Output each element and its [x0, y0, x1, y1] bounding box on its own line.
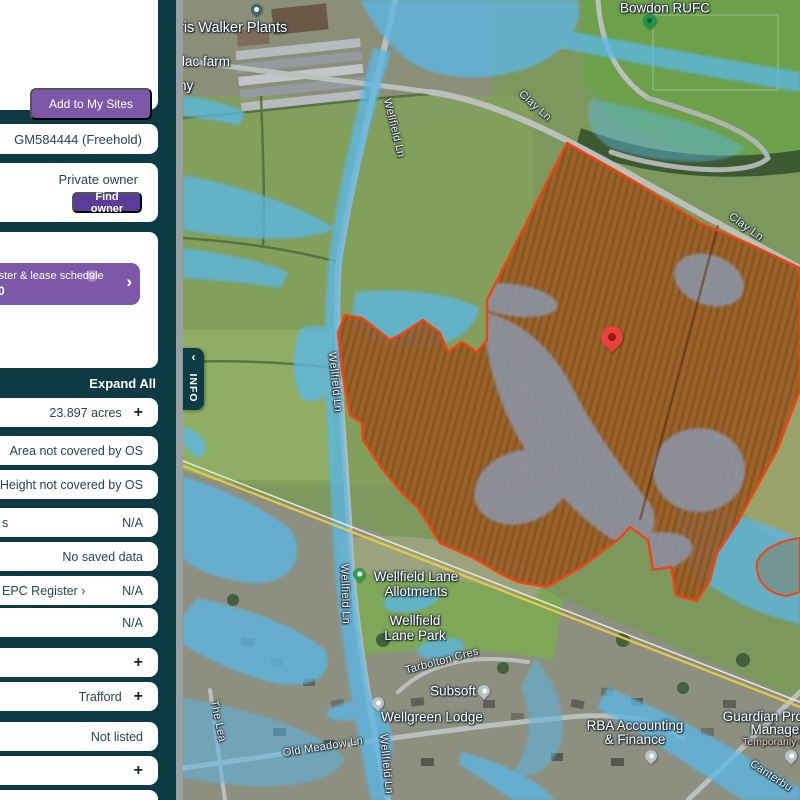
- row-partial[interactable]: [0, 790, 158, 800]
- row-value: Trafford: [79, 690, 122, 704]
- row-listed[interactable]: Not listed: [0, 722, 158, 751]
- row-epc[interactable]: EPC Register › N/A: [0, 576, 158, 605]
- row-acreage[interactable]: 23.897 acres +: [0, 398, 158, 427]
- documents-card: gister & lease schedule ? .00 ›: [0, 232, 158, 368]
- row-na-1[interactable]: s N/A: [0, 508, 158, 537]
- find-owner-button[interactable]: Find owner: [72, 192, 142, 213]
- title-number-card[interactable]: GM584444 (Freehold): [0, 124, 158, 154]
- row-value: N/A: [122, 584, 143, 598]
- chevron-right-icon: ›: [126, 272, 132, 292]
- label-bowdon-rufc[interactable]: Bowdon RUFC: [620, 1, 710, 16]
- row-expandable-2[interactable]: +: [0, 756, 158, 785]
- row-value: Area not covered by OS: [10, 444, 143, 458]
- label-rba[interactable]: RBA Accounting & Finance: [575, 719, 695, 747]
- row-value: 23.897 acres: [49, 406, 121, 420]
- row-value: Height not covered by OS: [0, 478, 143, 492]
- label-guardian-line2: Manageme: [718, 723, 800, 736]
- expand-plus-icon[interactable]: +: [134, 405, 143, 421]
- expand-plus-icon[interactable]: +: [134, 763, 143, 779]
- property-sidebar: Add to My Sites GM584444 (Freehold) Priv…: [0, 0, 176, 800]
- map-info-tab[interactable]: ‹ INFO: [183, 348, 204, 410]
- epc-register-link[interactable]: EPC Register ›: [2, 584, 85, 598]
- row-na-2[interactable]: N/A: [0, 608, 158, 637]
- title-number-text: GM584444 (Freehold): [14, 132, 142, 147]
- property-app: Bowdon RUFC ris Walker Plants ilac farm …: [0, 0, 800, 800]
- banner-price: .00: [0, 284, 5, 298]
- label-guardian-closed: Temporarily clos: [718, 736, 800, 749]
- row-value: N/A: [122, 516, 143, 530]
- sidebar-scrollbar[interactable]: [176, 0, 183, 800]
- row-expandable-1[interactable]: +: [0, 648, 158, 677]
- expand-plus-icon[interactable]: +: [134, 655, 143, 671]
- label-allotments-line2: Allotments: [351, 584, 481, 599]
- label-guardian[interactable]: Guardian Prope Manageme Temporarily clos: [718, 710, 800, 749]
- row-value: Not listed: [91, 730, 143, 744]
- row-authority[interactable]: Trafford +: [0, 682, 158, 711]
- label-wellgreen-lodge[interactable]: Wellgreen Lodge: [381, 710, 483, 725]
- row-value: No saved data: [62, 550, 143, 564]
- label-allotments[interactable]: Wellfield Lane Allotments: [351, 569, 481, 599]
- row-area-os[interactable]: Area not covered by OS: [0, 436, 158, 465]
- label-lilac-farm[interactable]: ilac farm: [183, 54, 230, 69]
- satellite-map[interactable]: Bowdon RUFC ris Walker Plants ilac farm …: [183, 0, 800, 800]
- label-wellfield-ln-3: Wellfield Ln: [338, 564, 352, 625]
- row-height-os[interactable]: Height not covered by OS: [0, 470, 158, 499]
- label-subsoft[interactable]: Subsoft: [430, 684, 476, 699]
- row-value: N/A: [122, 616, 143, 630]
- help-icon[interactable]: ?: [86, 270, 98, 282]
- label-park[interactable]: Wellfield Lane Park: [355, 613, 475, 643]
- label-allotments-line1: Wellfield Lane: [351, 569, 481, 584]
- info-tab-label: INFO: [187, 373, 199, 402]
- label-park-line2: Lane Park: [355, 628, 475, 643]
- map-canvas: [183, 0, 800, 800]
- row-saved-data[interactable]: No saved data: [0, 542, 158, 571]
- owner-status-text: Private owner: [59, 172, 138, 187]
- ownership-card: Private owner Find owner: [0, 163, 158, 222]
- label-rba-line2: & Finance: [575, 733, 695, 747]
- expand-plus-icon[interactable]: +: [134, 689, 143, 705]
- expand-all-button[interactable]: Expand All: [0, 376, 156, 391]
- label-walker-plants[interactable]: ris Walker Plants: [183, 20, 287, 36]
- collapse-chevron-icon: ‹: [183, 350, 204, 364]
- add-to-my-sites-button[interactable]: Add to My Sites: [30, 88, 152, 120]
- label-farm-suffix: ny: [183, 78, 193, 93]
- register-lease-banner[interactable]: gister & lease schedule ? .00 ›: [0, 263, 140, 305]
- label-park-line1: Wellfield: [355, 613, 475, 628]
- label-rba-line1: RBA Accounting: [575, 719, 695, 733]
